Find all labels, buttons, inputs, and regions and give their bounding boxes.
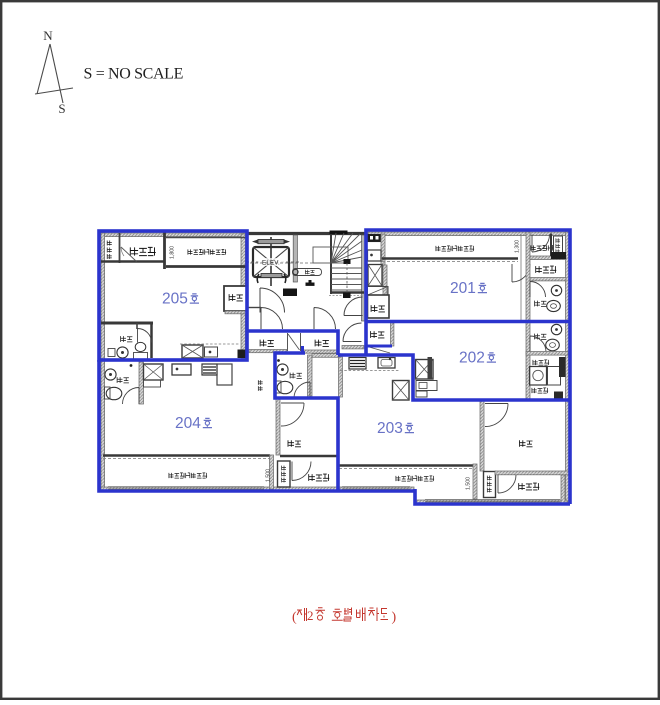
svg-text:1,500: 1,500 bbox=[266, 469, 272, 482]
svg-text:204: 204 bbox=[175, 415, 201, 432]
svg-text:): ) bbox=[392, 610, 397, 625]
svg-text:201: 201 bbox=[450, 280, 476, 297]
svg-text:1,300: 1,300 bbox=[515, 240, 521, 253]
svg-text:203: 203 bbox=[377, 420, 403, 437]
svg-text:202: 202 bbox=[459, 350, 485, 367]
svg-text:S: S bbox=[58, 101, 65, 116]
svg-text:205: 205 bbox=[162, 291, 188, 308]
svg-text:1,500: 1,500 bbox=[466, 477, 472, 490]
svg-text:(: ( bbox=[292, 610, 297, 625]
svg-text:S = NO SCALE: S = NO SCALE bbox=[84, 66, 184, 83]
svg-text:2: 2 bbox=[307, 608, 314, 623]
svg-text:N: N bbox=[43, 28, 53, 43]
svg-text:1,800: 1,800 bbox=[170, 246, 176, 259]
